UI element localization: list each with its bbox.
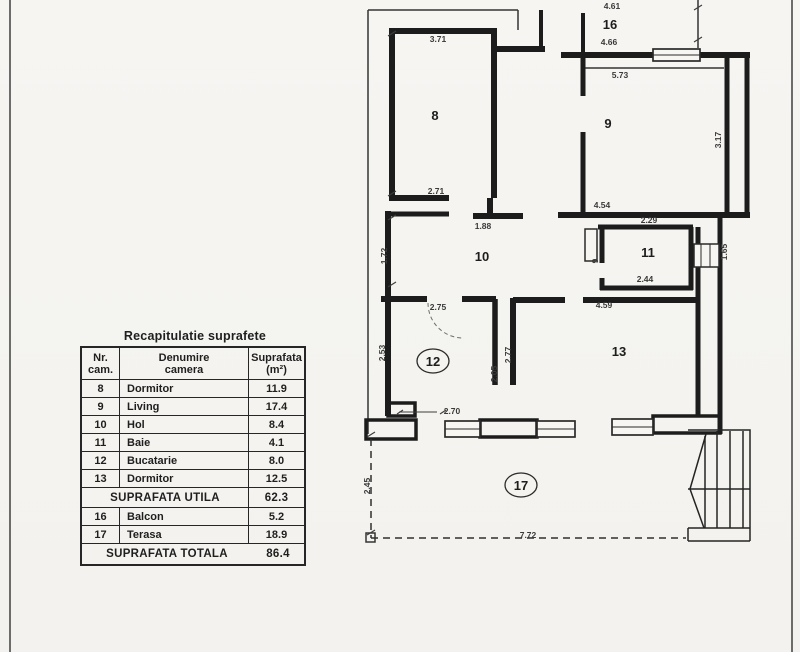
cell-room-area: 17.4 xyxy=(249,398,304,415)
dim-label: 2.53 xyxy=(377,344,387,361)
cell-room-area: 8.4 xyxy=(249,416,304,433)
cell-room-area: 5.2 xyxy=(249,508,304,525)
header-line: Nr. xyxy=(93,352,108,364)
table-title: Recapitulatie suprafete xyxy=(84,329,306,343)
window-symbol xyxy=(653,49,700,61)
cell-room-number: 12 xyxy=(82,452,120,469)
room-label-10: 10 xyxy=(475,249,489,264)
dim-label: 5.73 xyxy=(612,70,629,80)
subtotal-row: SUPRAFATA UTILA 62.3 xyxy=(82,487,304,507)
header-denumire: Denumire camera xyxy=(120,348,249,379)
cell-room-name: Dormitor xyxy=(120,380,249,397)
room-label-16: 16 xyxy=(603,17,617,32)
window-symbols xyxy=(445,49,700,437)
terrace-outline xyxy=(371,439,686,538)
cell-room-area: 4.1 xyxy=(249,434,304,451)
table-header-row: Nr. cam. Denumire camera Suprafata (m²) xyxy=(82,348,304,379)
total-row: SUPRAFATA TOTALA 86.4 xyxy=(82,543,304,564)
dim-label: 3.17 xyxy=(713,131,723,148)
header-line: camera xyxy=(165,364,204,376)
dim-label: 2.71 xyxy=(428,186,445,196)
header-line: cam. xyxy=(88,364,113,376)
cell-room-number: 9 xyxy=(82,398,120,415)
dim-label: 4.54 xyxy=(594,200,611,210)
cell-room-name: Balcon xyxy=(120,508,249,525)
cell-room-name: Terasa xyxy=(120,526,249,543)
area-table: Nr. cam. Denumire camera Suprafata (m²) … xyxy=(80,346,306,566)
cell-room-number: 17 xyxy=(82,526,120,543)
cell-room-number: 8 xyxy=(82,380,120,397)
dim-label: 3.71 xyxy=(430,34,447,44)
dimension-ticks xyxy=(367,5,702,535)
walls xyxy=(381,10,750,434)
dim-label: 1.65 xyxy=(719,243,729,260)
dim-label: 2.77 xyxy=(503,346,513,363)
header-suprafata: Suprafata (m²) xyxy=(249,348,304,379)
cell-room-number: 11 xyxy=(82,434,120,451)
dim-label: 4.66 xyxy=(601,37,618,47)
window-symbol xyxy=(537,421,575,437)
cell-room-name: Living xyxy=(120,398,249,415)
room-label-17: 17 xyxy=(514,478,528,493)
dim-label: 2.45 xyxy=(362,477,372,494)
total-value: 86.4 xyxy=(252,544,304,564)
table-row: 16 Balcon 5.2 xyxy=(82,507,304,525)
dim-label: 1.88 xyxy=(475,221,492,231)
table-row: 9 Living 17.4 xyxy=(82,397,304,415)
table-row: 11 Baie 4.1 xyxy=(82,433,304,451)
table-row: 8 Dormitor 11.9 xyxy=(82,379,304,397)
dim-label: 4.59 xyxy=(596,300,613,310)
room-label-8: 8 xyxy=(431,108,438,123)
dim-label: 2.44 xyxy=(637,274,654,284)
dimension-labels: 4.61 4.66 5.73 3.71 2.71 1.88 4.54 2.29 … xyxy=(362,1,729,540)
cell-room-number: 16 xyxy=(82,508,120,525)
cell-room-area: 8.0 xyxy=(249,452,304,469)
dim-label: 4.61 xyxy=(604,1,621,11)
room-label-11: 11 xyxy=(641,245,655,260)
table-row: 10 Hol 8.4 xyxy=(82,415,304,433)
cell-room-name: Dormitor xyxy=(120,470,249,487)
area-summary-block: Recapitulatie suprafete Nr. cam. Denumir… xyxy=(80,329,306,566)
cell-room-name: Bucatarie xyxy=(120,452,249,469)
cell-room-number: 10 xyxy=(82,416,120,433)
window-symbol xyxy=(612,419,653,435)
total-label: SUPRAFATA TOTALA xyxy=(82,544,252,564)
dim-label: 2.29 xyxy=(641,215,658,225)
cell-room-area: 18.9 xyxy=(249,526,304,543)
table-row: 13 Dormitor 12.5 xyxy=(82,469,304,487)
room-label-13: 13 xyxy=(612,344,626,359)
dim-label: 2.75 xyxy=(430,302,447,312)
cell-room-name: Baie xyxy=(120,434,249,451)
cell-room-area: 11.9 xyxy=(249,380,304,397)
cell-room-name: Hol xyxy=(120,416,249,433)
subtotal-label: SUPRAFATA UTILA xyxy=(82,488,249,507)
header-line: (m²) xyxy=(266,364,287,376)
subtotal-value: 62.3 xyxy=(249,488,304,507)
dim-label: 1.72 xyxy=(379,247,389,264)
stairs xyxy=(688,430,750,541)
scanned-floor-plan-page: 8 9 10 11 12 13 16 17 4.61 4.66 5.73 3.7… xyxy=(0,0,800,652)
table-row: 12 Bucatarie 8.0 xyxy=(82,451,304,469)
header-line: Denumire xyxy=(159,352,210,364)
room-label-12: 12 xyxy=(426,354,440,369)
room-label-9: 9 xyxy=(604,116,611,131)
table-row: 17 Terasa 18.9 xyxy=(82,525,304,543)
cell-room-number: 13 xyxy=(82,470,120,487)
dim-label: 7.72 xyxy=(520,530,537,540)
dim-label: 9 xyxy=(590,258,600,263)
window-symbol xyxy=(445,421,480,437)
header-nr-cam: Nr. cam. xyxy=(82,348,120,379)
dim-label: 2.70 xyxy=(444,406,461,416)
header-line: Suprafata xyxy=(251,352,302,364)
dim-label: 2.05 xyxy=(489,365,499,382)
cell-room-area: 12.5 xyxy=(249,470,304,487)
